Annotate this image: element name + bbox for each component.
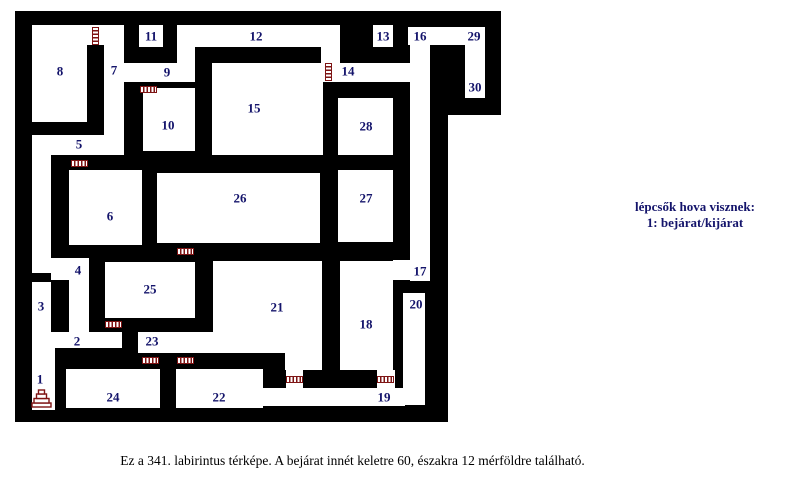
door-icon	[286, 376, 303, 383]
room-number-label: 1	[37, 373, 44, 386]
legend-line-2: 1: bejárat/kijárat	[584, 215, 789, 231]
room-number-label: 11	[145, 30, 157, 43]
maze-room	[32, 135, 51, 273]
maze-room	[213, 261, 322, 353]
door-icon	[105, 321, 122, 328]
room-number-label: 25	[144, 283, 157, 296]
room-number-label: 4	[75, 264, 82, 277]
maze-room	[410, 45, 430, 281]
maze-room	[104, 25, 124, 155]
maze-room	[177, 47, 195, 63]
room-number-label: 26	[234, 192, 247, 205]
maze-room	[285, 353, 322, 370]
door-icon	[177, 248, 194, 255]
room-number-label: 27	[360, 192, 373, 205]
stairs-legend: lépcsők hova visznek: 1: bejárat/kijárat	[584, 199, 789, 231]
room-number-label: 7	[111, 64, 118, 77]
maze-room	[321, 47, 340, 63]
stairs-icon	[31, 387, 52, 408]
maze-room	[338, 170, 393, 242]
room-number-label: 9	[164, 66, 171, 79]
door-icon	[71, 160, 88, 167]
maze-room	[69, 170, 142, 245]
room-number-label: 12	[250, 30, 263, 43]
door-icon	[92, 27, 99, 45]
door-icon	[325, 63, 332, 81]
map-caption: Ez a 341. labirintus térképe. A bejárat …	[0, 453, 705, 469]
room-number-label: 8	[57, 65, 64, 78]
room-number-label: 24	[107, 391, 120, 404]
legend-line-1: lépcsők hova visznek:	[584, 199, 789, 215]
room-number-label: 15	[248, 102, 261, 115]
maze-room	[212, 63, 323, 155]
room-number-label: 3	[38, 300, 45, 313]
maze-room	[157, 173, 320, 243]
room-number-label: 20	[410, 298, 423, 311]
room-number-label: 10	[162, 119, 175, 132]
room-number-label: 17	[414, 265, 427, 278]
room-number-label: 28	[360, 120, 373, 133]
maze-room	[124, 63, 195, 82]
room-number-label: 23	[146, 335, 159, 348]
room-number-label: 16	[414, 30, 427, 43]
door-icon	[142, 357, 159, 364]
room-number-label: 5	[76, 138, 83, 151]
room-number-label: 19	[378, 391, 391, 404]
room-number-label: 21	[271, 301, 284, 314]
door-icon	[177, 357, 194, 364]
maze-room	[176, 388, 405, 406]
room-number-label: 13	[377, 30, 390, 43]
maze-room	[393, 260, 412, 280]
room-number-label: 18	[360, 318, 373, 331]
door-icon	[377, 376, 394, 383]
room-number-label: 22	[213, 391, 226, 404]
maze-room	[340, 261, 393, 370]
room-number-label: 2	[74, 335, 81, 348]
door-icon	[140, 86, 157, 93]
room-number-label: 6	[107, 210, 114, 223]
room-number-label: 14	[342, 65, 355, 78]
room-number-label: 30	[469, 81, 482, 94]
room-number-label: 29	[468, 30, 481, 43]
page: 1234567891011121314151617181920212223242…	[0, 0, 789, 493]
